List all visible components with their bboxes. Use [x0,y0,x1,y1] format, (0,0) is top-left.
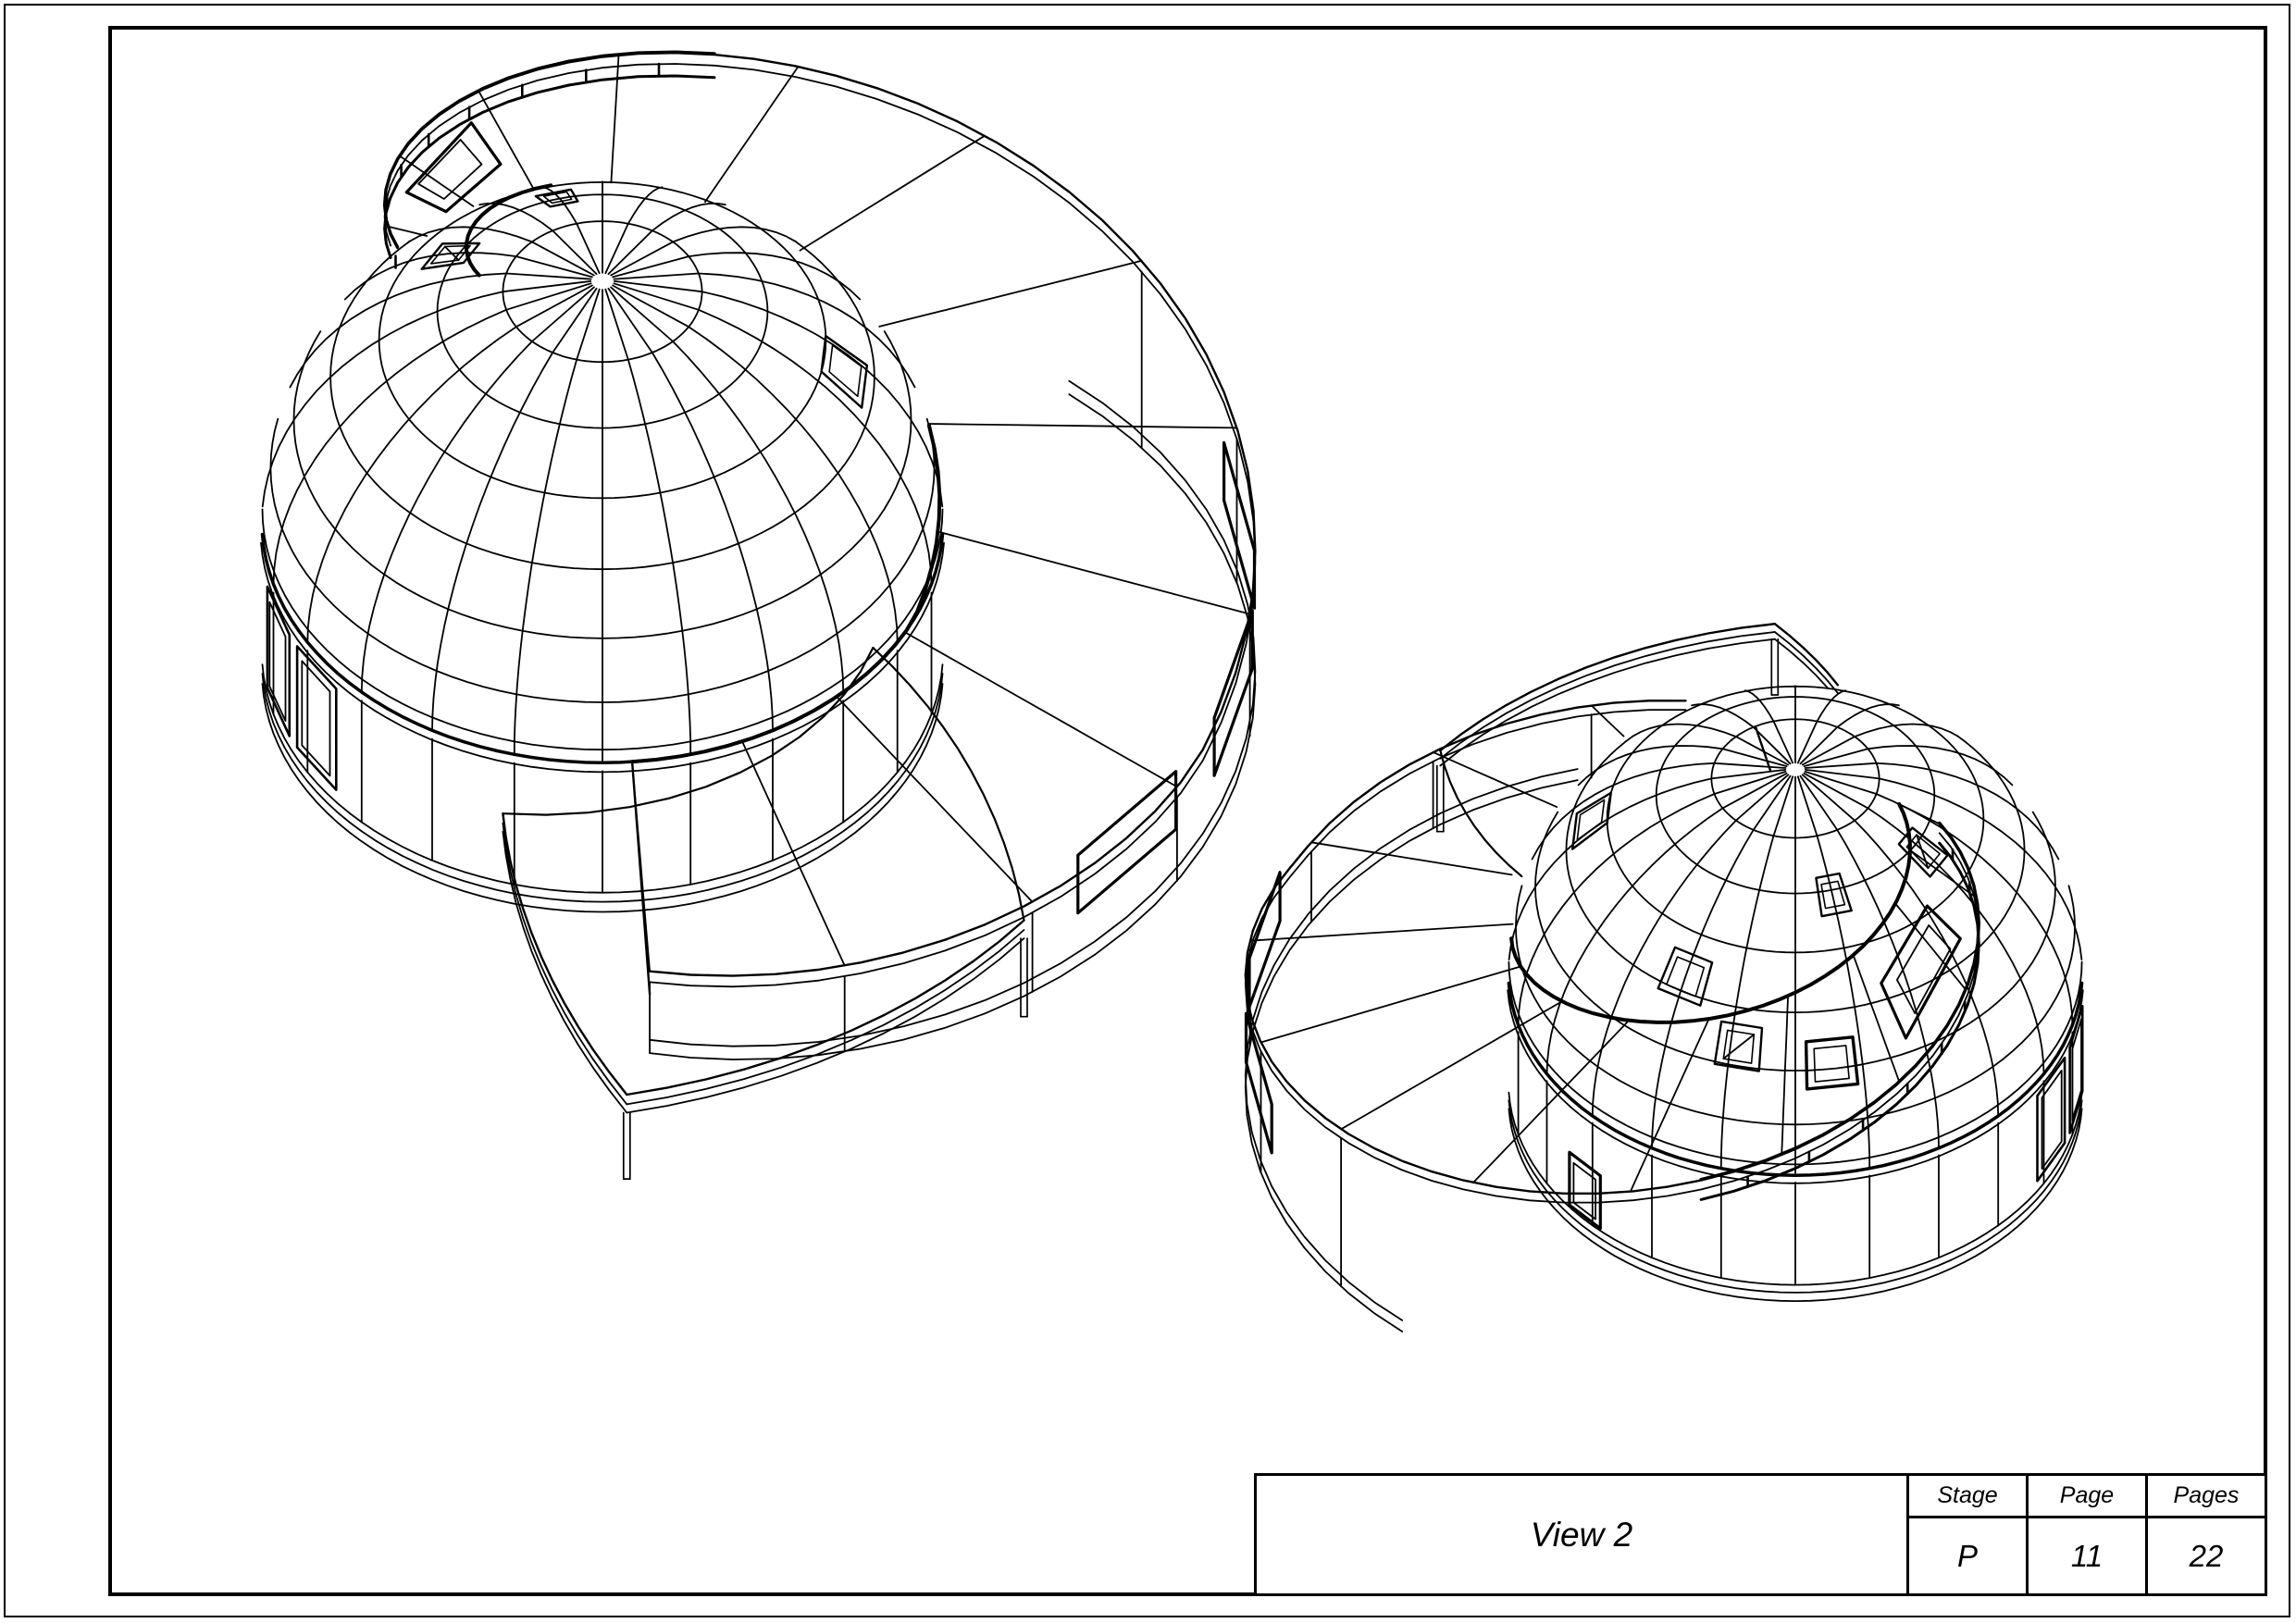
title-block-pages-column: Pages 22 [2148,1476,2265,1593]
drawing-canvas [0,0,2296,1623]
dome-structure-view-northeast [1246,624,2083,1332]
stage-label: Stage [1909,1476,2026,1518]
view-title: View 2 [1257,1476,1909,1593]
title-block: View 2 Stage P Page 11 Pages 22 [1254,1473,2267,1596]
pages-label: Pages [2148,1476,2265,1518]
page-label: Page [2029,1476,2145,1518]
title-block-page-column: Page 11 [2029,1476,2148,1593]
title-block-stage-column: Stage P [1909,1476,2029,1593]
dome-structure-view-southwest [261,52,1255,1179]
pages-value: 22 [2148,1518,2265,1593]
page-value: 11 [2029,1518,2145,1593]
drawing-sheet: View 2 Stage P Page 11 Pages 22 [0,0,2296,1623]
stage-value: P [1909,1518,2026,1593]
